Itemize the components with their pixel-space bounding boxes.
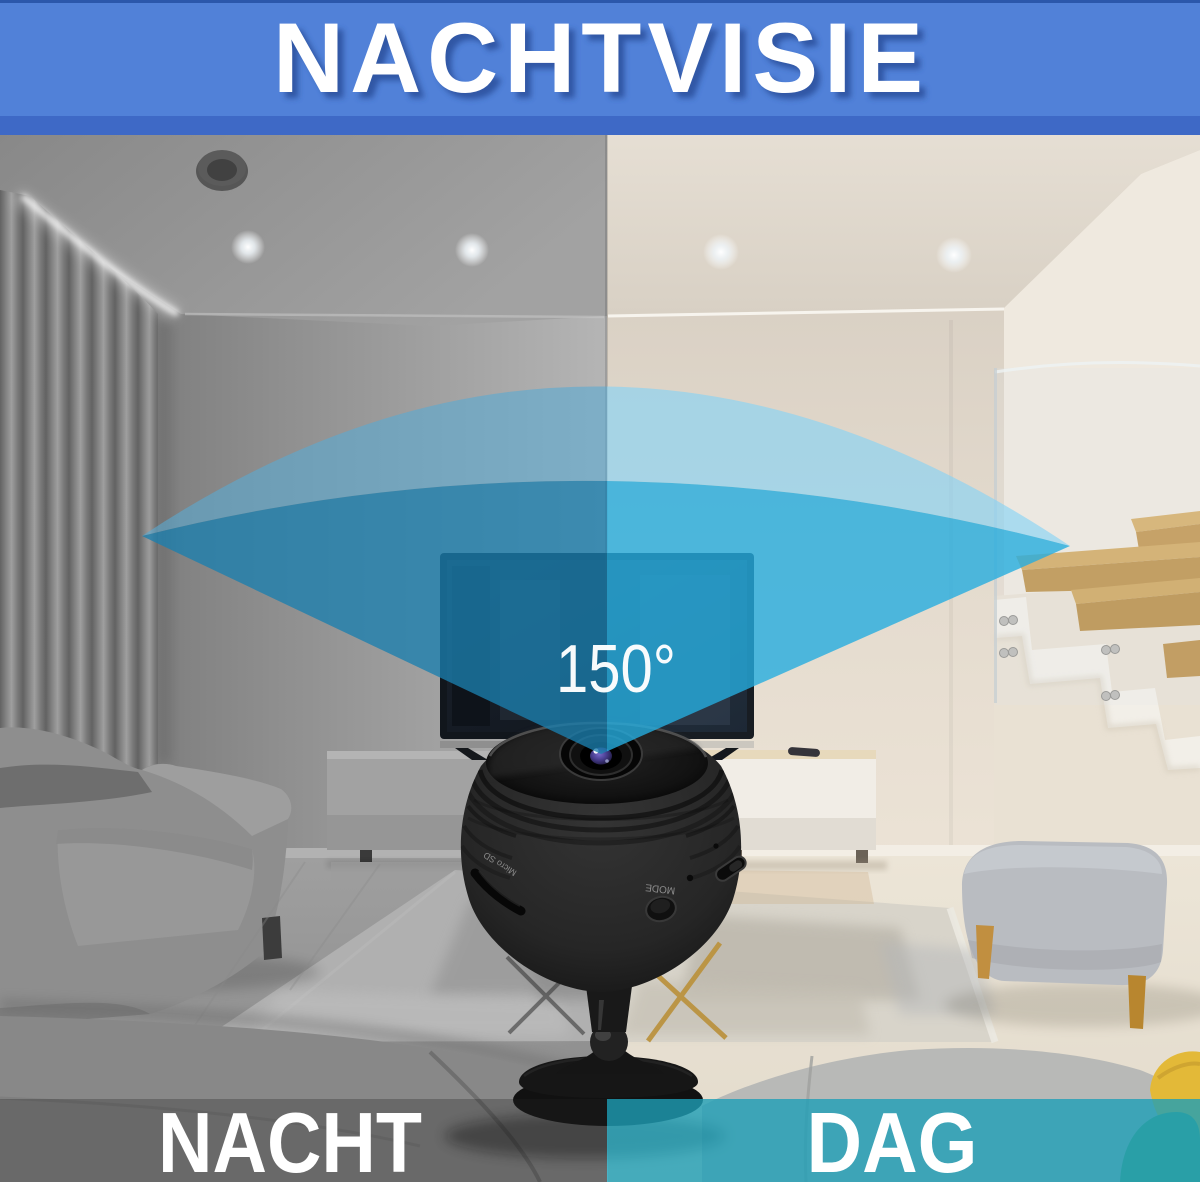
svg-text:NACHTVISIE: NACHTVISIE xyxy=(273,2,929,113)
svg-text:150°: 150° xyxy=(556,631,676,707)
svg-text:DAG: DAG xyxy=(807,1096,978,1182)
svg-text:NACHT: NACHT xyxy=(158,1096,422,1182)
